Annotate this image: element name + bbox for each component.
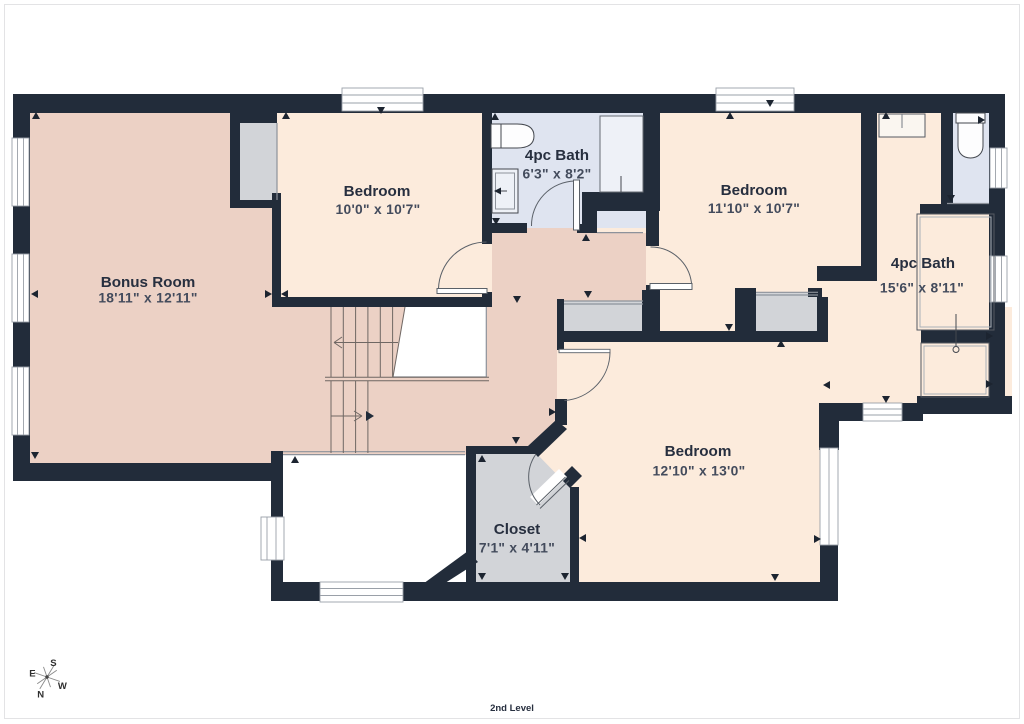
- svg-text:6'3" x 8'2": 6'3" x 8'2": [523, 167, 592, 182]
- svg-text:15'6" x 8'11": 15'6" x 8'11": [880, 281, 964, 296]
- svg-text:Bedroom: Bedroom: [721, 182, 788, 199]
- svg-text:E: E: [29, 669, 35, 680]
- svg-text:N: N: [37, 690, 44, 701]
- svg-text:4pc Bath: 4pc Bath: [525, 147, 589, 164]
- svg-text:Bonus Room: Bonus Room: [101, 274, 196, 291]
- svg-text:18'11" x 12'11": 18'11" x 12'11": [98, 291, 197, 306]
- svg-text:7'1" x 4'11": 7'1" x 4'11": [479, 541, 555, 556]
- svg-text:12'10" x 13'0": 12'10" x 13'0": [653, 464, 746, 479]
- svg-text:Bedroom: Bedroom: [344, 183, 411, 200]
- svg-text:S: S: [50, 658, 56, 669]
- svg-text:11'10" x 10'7": 11'10" x 10'7": [708, 201, 800, 216]
- svg-text:W: W: [58, 681, 67, 692]
- svg-text:Bedroom: Bedroom: [665, 443, 732, 460]
- svg-text:Closet: Closet: [494, 521, 540, 538]
- svg-text:2nd Level: 2nd Level: [490, 703, 534, 714]
- svg-text:4pc Bath: 4pc Bath: [891, 255, 955, 272]
- svg-text:10'0" x 10'7": 10'0" x 10'7": [336, 202, 421, 217]
